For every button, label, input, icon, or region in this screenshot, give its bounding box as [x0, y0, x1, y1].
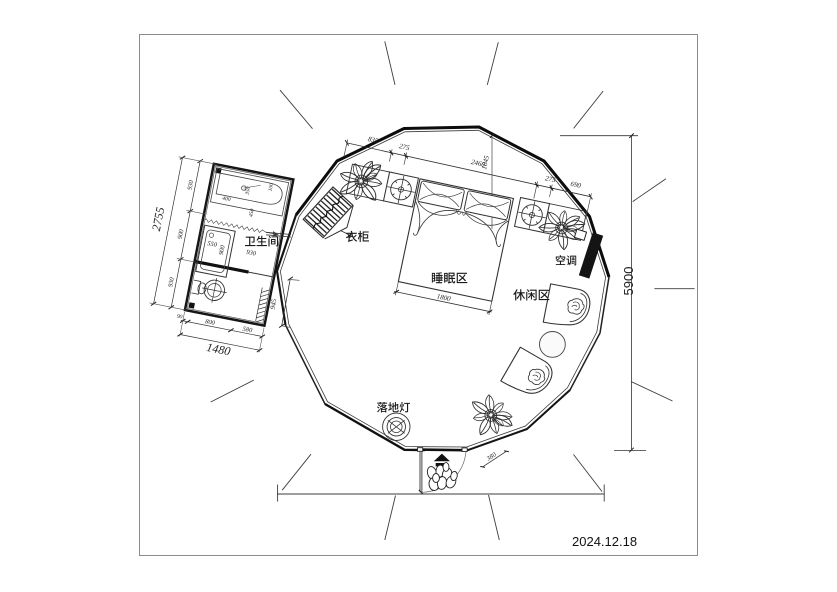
svg-text:2755: 2755: [149, 206, 167, 232]
svg-text:580: 580: [242, 326, 254, 335]
svg-text:690: 690: [570, 180, 582, 190]
svg-text:550: 550: [207, 240, 219, 249]
svg-text:900: 900: [177, 228, 186, 240]
svg-text:900: 900: [218, 244, 227, 256]
svg-text:350: 350: [244, 186, 252, 196]
svg-text:930: 930: [186, 179, 195, 191]
svg-text:5900: 5900: [621, 267, 636, 296]
svg-text:930: 930: [167, 276, 176, 288]
svg-text:400: 400: [222, 195, 232, 204]
svg-text:275: 275: [398, 142, 410, 152]
svg-text:1045: 1045: [480, 154, 491, 170]
svg-text:930: 930: [246, 249, 258, 258]
svg-text:800: 800: [205, 318, 217, 327]
svg-text:1800: 1800: [436, 292, 452, 303]
svg-text:1480: 1480: [205, 340, 231, 358]
svg-text:90: 90: [176, 314, 183, 321]
svg-text:2024.12.18: 2024.12.18: [572, 534, 637, 549]
svg-text:275: 275: [544, 174, 556, 184]
svg-text:100: 100: [268, 182, 276, 192]
